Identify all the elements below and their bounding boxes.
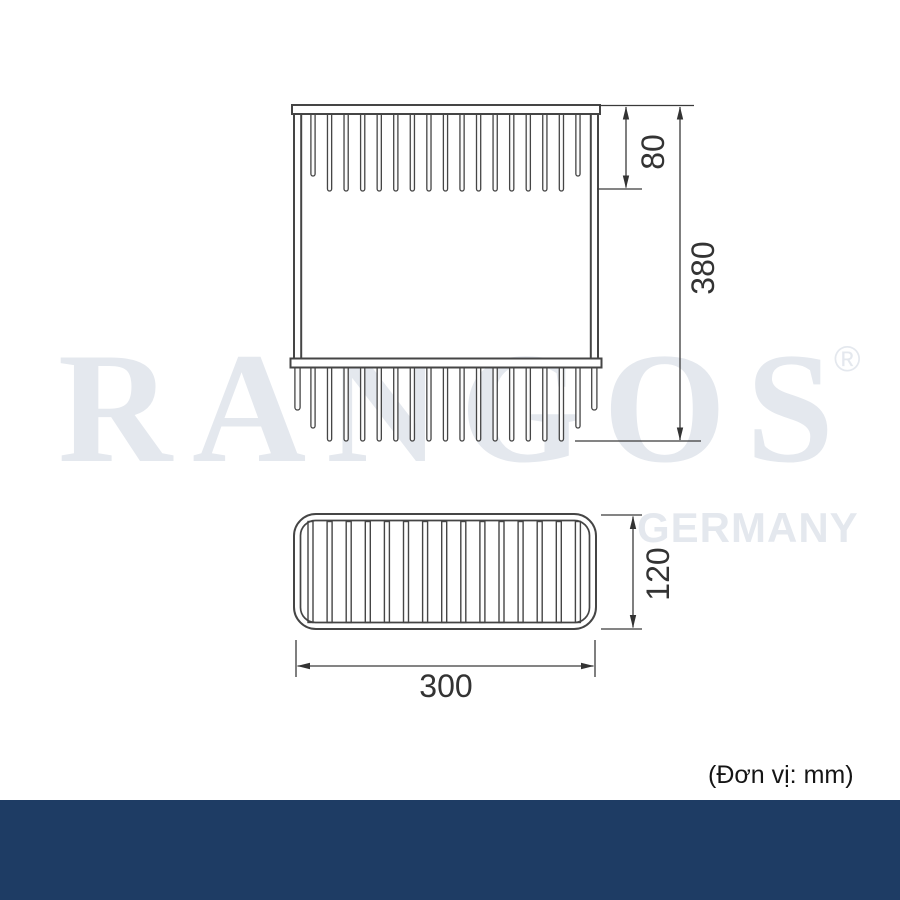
wire xyxy=(308,522,313,623)
wire xyxy=(423,522,428,623)
top-view xyxy=(294,514,596,629)
wire xyxy=(556,522,561,623)
wire xyxy=(443,110,447,191)
wire xyxy=(493,110,497,191)
wire xyxy=(410,110,414,191)
wire xyxy=(526,362,530,441)
wire xyxy=(384,522,389,623)
arrow-down-icon xyxy=(677,428,683,441)
wire xyxy=(394,110,398,191)
dim-label-300: 300 xyxy=(419,668,472,704)
wire xyxy=(559,110,563,191)
wire xyxy=(377,110,381,191)
wire xyxy=(575,522,580,623)
dim-label-80: 80 xyxy=(635,134,671,170)
front-right-post xyxy=(591,112,598,362)
wire xyxy=(404,522,409,623)
wire xyxy=(361,110,365,191)
unit-note: (Đơn vị: mm) xyxy=(708,761,854,790)
wire xyxy=(410,362,414,441)
wire xyxy=(592,362,597,410)
dim-label-120: 120 xyxy=(640,547,676,600)
wire xyxy=(493,362,497,441)
front-top-rail xyxy=(292,105,600,114)
arrow-down-icon xyxy=(623,176,629,189)
wire xyxy=(460,362,464,441)
footer-bar: Bản vẽ phụ kiện phòng tắm RG - PK3631-2D… xyxy=(0,800,900,900)
wire xyxy=(311,362,315,428)
arrow-left-icon xyxy=(297,663,310,669)
arrow-up-icon xyxy=(623,107,629,120)
wire xyxy=(394,362,398,441)
wire xyxy=(510,362,514,441)
front-top-wires xyxy=(311,110,580,191)
arrow-up-icon xyxy=(677,107,683,120)
wire xyxy=(526,110,530,191)
wire xyxy=(344,110,348,191)
wire xyxy=(460,110,464,191)
wire xyxy=(365,522,370,623)
wire xyxy=(543,110,547,191)
wire xyxy=(559,362,563,441)
wire xyxy=(442,522,447,623)
wire xyxy=(361,362,365,441)
wire xyxy=(344,362,348,441)
wire xyxy=(510,110,514,191)
technical-drawing: 80 380 120 300 xyxy=(0,0,900,760)
wire xyxy=(427,110,431,191)
page: RANGOS ® GERMANY 80 xyxy=(0,0,900,900)
wire xyxy=(518,522,523,623)
wire xyxy=(295,362,300,410)
wire xyxy=(461,522,466,623)
front-left-post xyxy=(294,112,301,362)
wire xyxy=(576,110,580,176)
wire xyxy=(543,362,547,441)
wire xyxy=(327,362,331,441)
wire xyxy=(477,110,481,191)
dim-label-380: 380 xyxy=(685,241,721,294)
wire xyxy=(327,522,332,623)
wire xyxy=(427,362,431,441)
wire xyxy=(537,522,542,623)
arrow-right-icon xyxy=(581,663,594,669)
wire xyxy=(346,522,351,623)
wire xyxy=(576,362,580,428)
wire xyxy=(477,362,481,441)
arrow-down-icon xyxy=(630,615,636,628)
wire xyxy=(480,522,485,623)
front-bottom-rail xyxy=(291,359,602,368)
wire xyxy=(327,110,331,191)
wire xyxy=(443,362,447,441)
wire xyxy=(311,110,315,176)
wire xyxy=(499,522,504,623)
topview-wires xyxy=(308,522,580,623)
arrow-up-icon xyxy=(630,516,636,529)
front-bottom-wires xyxy=(295,362,597,441)
front-view xyxy=(291,105,602,441)
wire xyxy=(377,362,381,441)
